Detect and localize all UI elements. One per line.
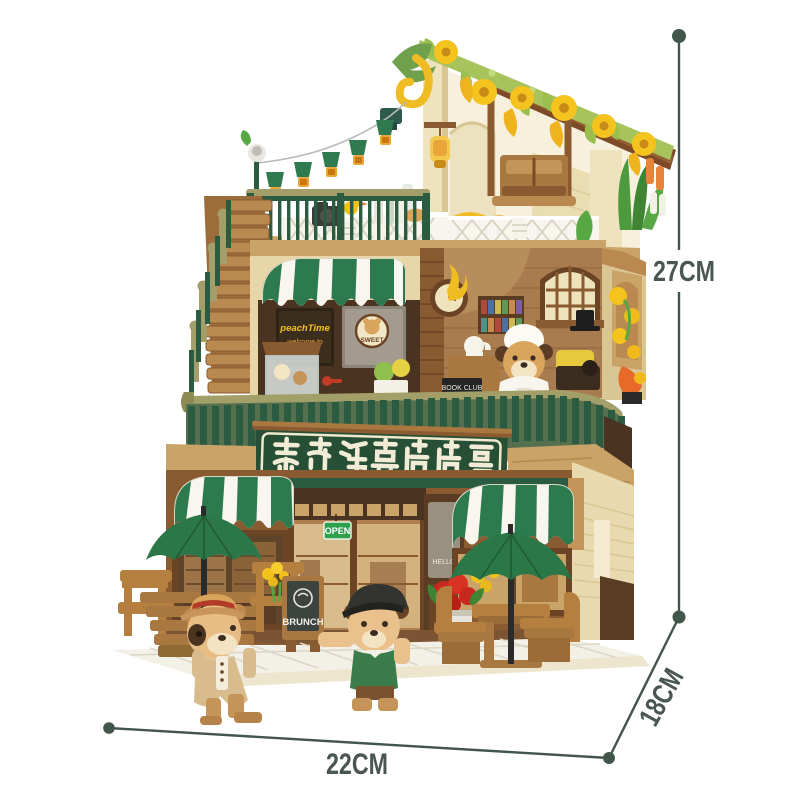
svg-text:BRUNCH: BRUNCH [282,617,323,628]
svg-text:BOOK CLUB: BOOK CLUB [442,385,483,392]
svg-text:OPEN: OPEN [325,526,351,536]
svg-text:27CM: 27CM [653,256,715,288]
svg-text:peachTime: peachTime [279,323,330,334]
svg-text:SWEET: SWEET [360,337,383,344]
svg-text:22CM: 22CM [326,748,388,781]
